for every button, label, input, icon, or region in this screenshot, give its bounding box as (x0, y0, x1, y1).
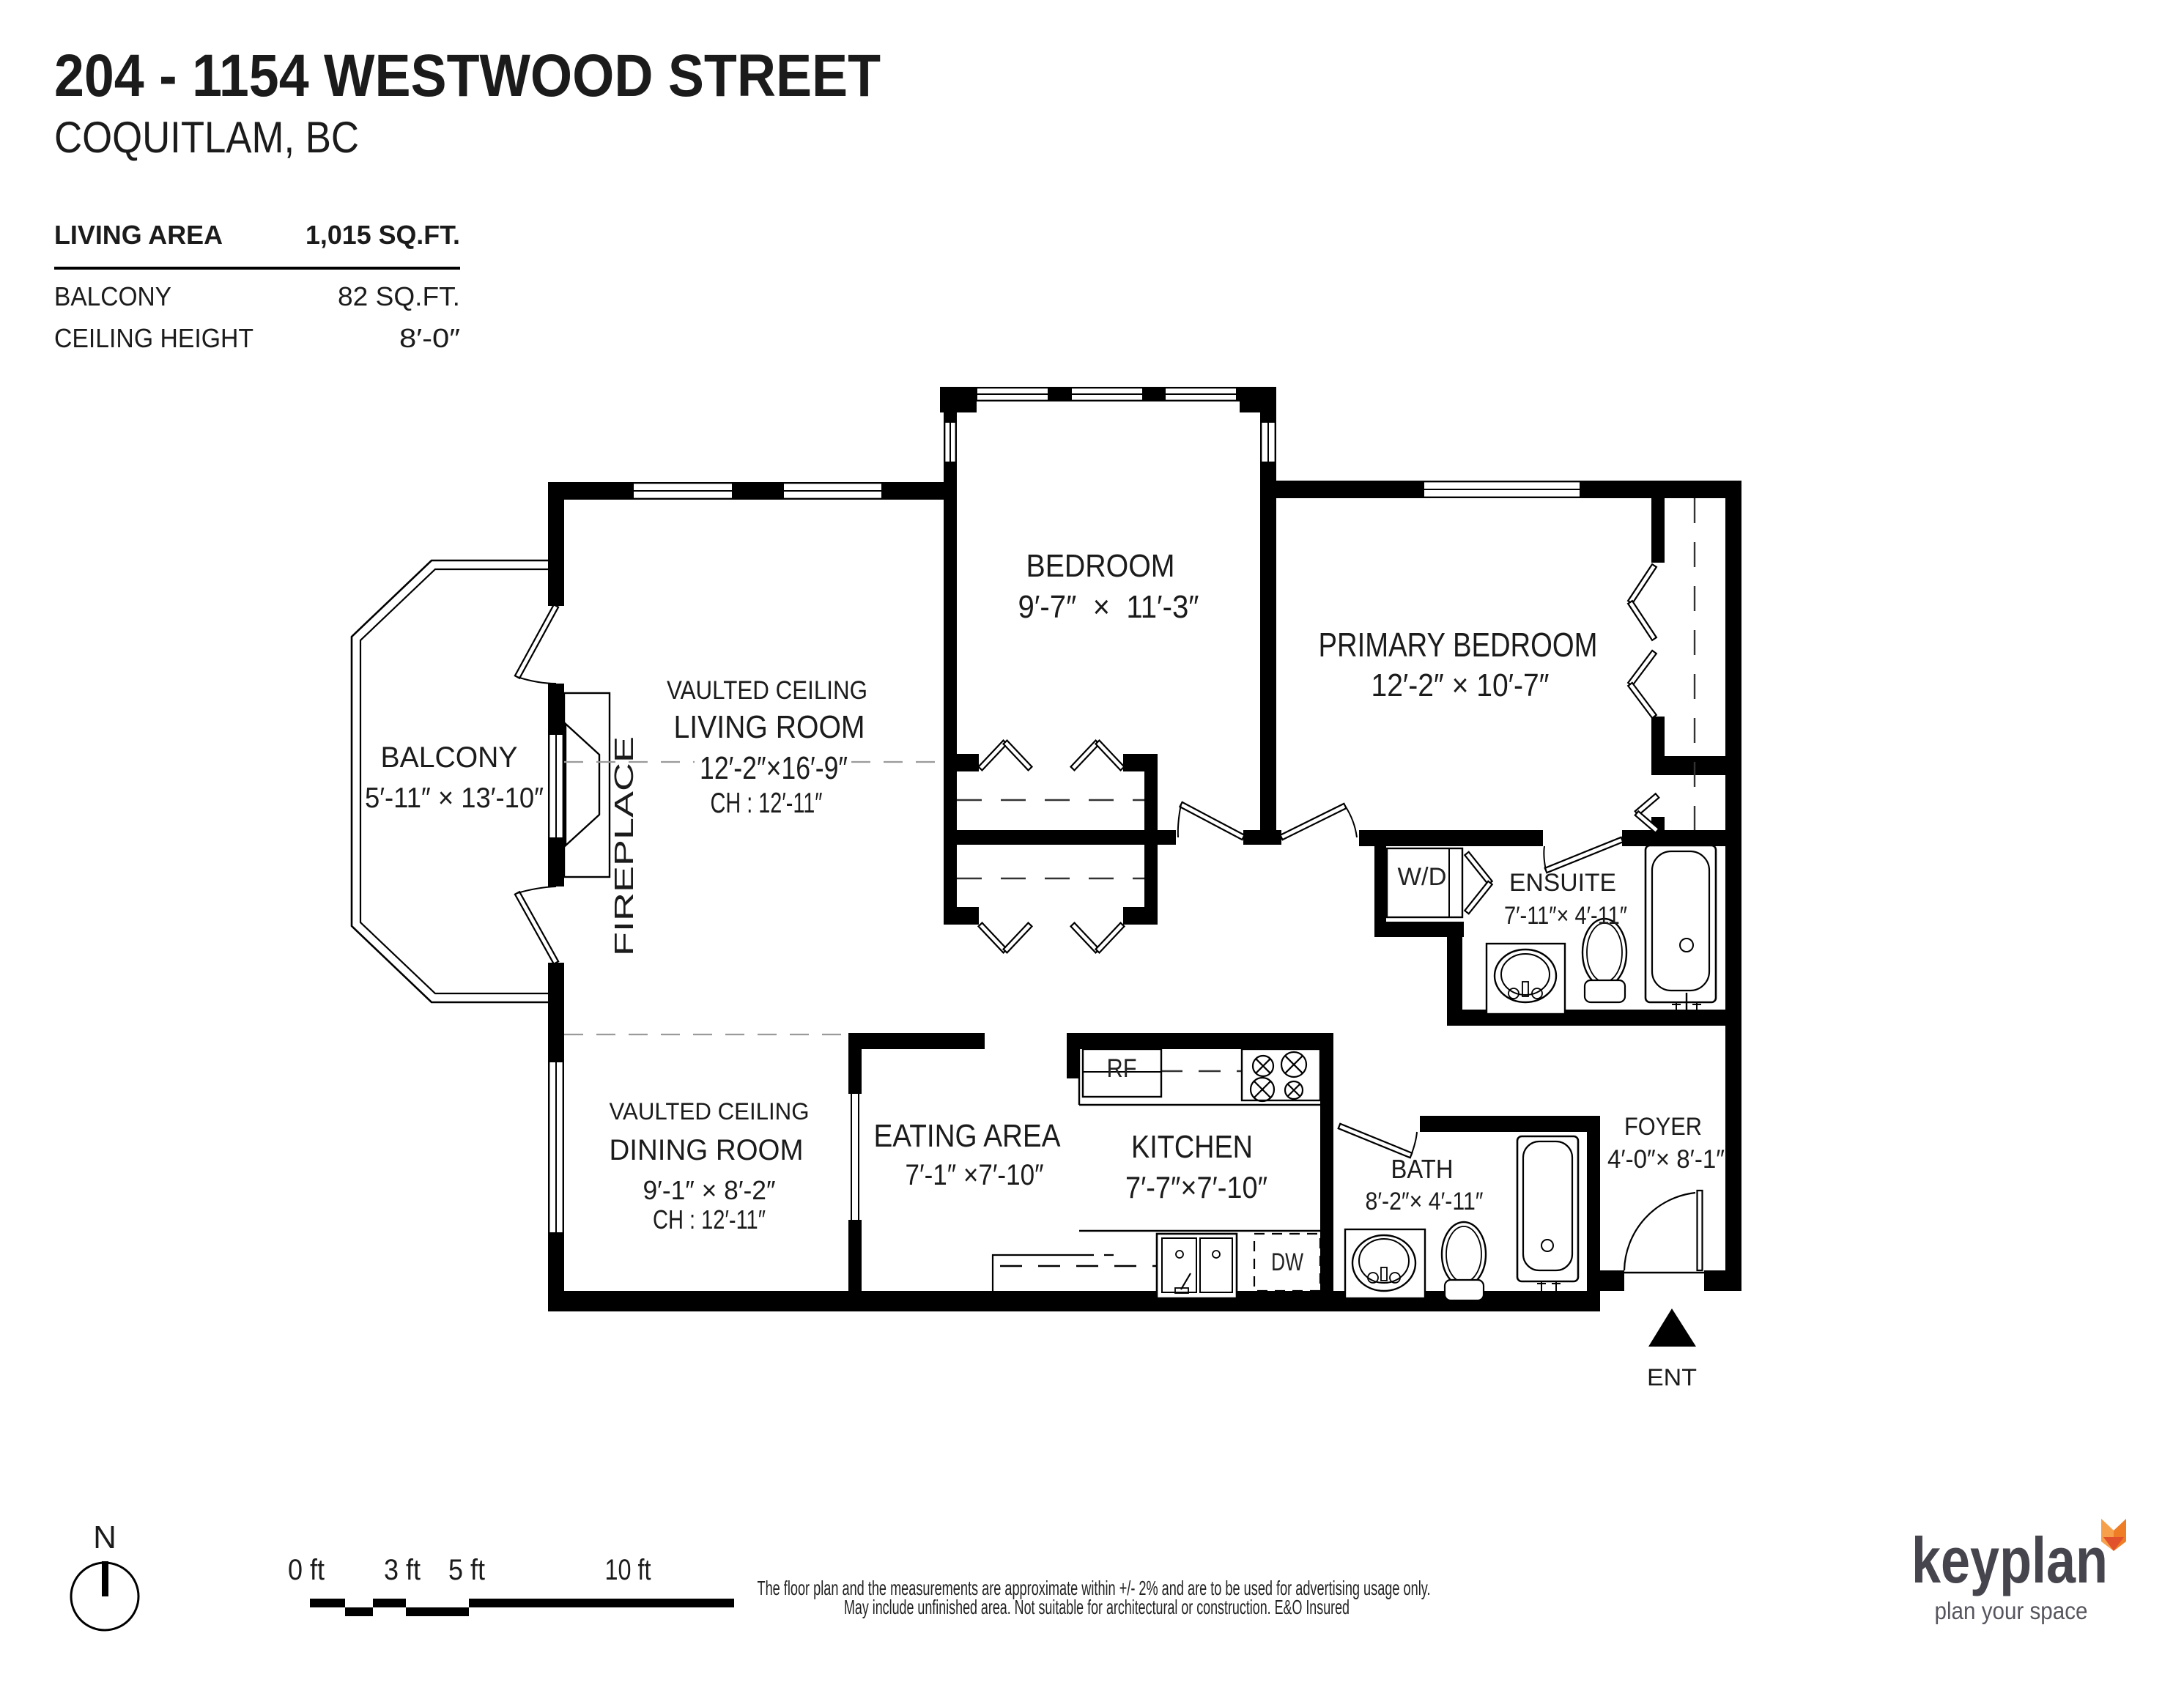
svg-text:BALCONY: BALCONY (54, 281, 171, 311)
svg-text:204 - 1154 WESTWOOD STREET: 204 - 1154 WESTWOOD STREET (54, 42, 881, 109)
svg-text:1,015 SQ.FT.: 1,015 SQ.FT. (306, 220, 460, 250)
svg-text:DINING ROOM: DINING ROOM (610, 1134, 804, 1166)
svg-text:ENT: ENT (1647, 1364, 1697, 1391)
svg-text:3 ft: 3 ft (384, 1554, 421, 1586)
svg-text:KITCHEN: KITCHEN (1131, 1129, 1253, 1165)
svg-text:BATH: BATH (1391, 1154, 1454, 1184)
svg-text:RF: RF (1107, 1054, 1137, 1083)
svg-text:plan your space: plan your space (1935, 1597, 2088, 1624)
svg-text:8′-2″× 4′-11″: 8′-2″× 4′-11″ (1366, 1188, 1484, 1215)
svg-text:12′-2″×16′-9″: 12′-2″×16′-9″ (700, 750, 848, 786)
svg-text:FOYER: FOYER (1624, 1113, 1702, 1141)
svg-text:7′-1″ ×7′-10″: 7′-1″ ×7′-10″ (906, 1159, 1044, 1191)
svg-text:9′-1″ × 8′-2″: 9′-1″ × 8′-2″ (643, 1175, 776, 1205)
svg-text:N: N (93, 1519, 116, 1555)
svg-text:CEILING HEIGHT: CEILING HEIGHT (54, 323, 253, 353)
svg-text:DW: DW (1271, 1248, 1303, 1276)
svg-text:COQUITLAM, BC: COQUITLAM, BC (54, 113, 359, 162)
svg-text:VAULTED CEILING: VAULTED CEILING (667, 676, 867, 705)
svg-text:LIVING ROOM: LIVING ROOM (674, 709, 865, 745)
svg-text:12′-2″ × 10′-7″: 12′-2″ × 10′-7″ (1372, 667, 1550, 703)
svg-text:4′-0″× 8′-1″: 4′-0″× 8′-1″ (1607, 1145, 1725, 1174)
svg-text:May include unfinished area. N: May include unfinished area. Not suitabl… (844, 1596, 1350, 1618)
svg-text:VAULTED CEILING: VAULTED CEILING (610, 1098, 810, 1125)
svg-text:0 ft: 0 ft (288, 1554, 325, 1586)
svg-text:9′-7″ × 11′-3″: 9′-7″ × 11′-3″ (1018, 589, 1199, 625)
svg-text:PRIMARY BEDROOM: PRIMARY BEDROOM (1319, 626, 1598, 664)
svg-text:5 ft: 5 ft (448, 1554, 485, 1586)
svg-text:5′-11″ × 13′-10″: 5′-11″ × 13′-10″ (365, 782, 544, 814)
svg-text:CH : 12′-11″: CH : 12′-11″ (653, 1204, 766, 1234)
svg-text:82 SQ.FT.: 82 SQ.FT. (338, 281, 460, 311)
svg-text:ENSUITE: ENSUITE (1509, 869, 1616, 897)
svg-text:8′-0″: 8′-0″ (399, 323, 460, 353)
svg-text:EATING AREA: EATING AREA (874, 1118, 1062, 1154)
svg-text:W/D: W/D (1398, 863, 1447, 891)
svg-text:7′-11″× 4′-11″: 7′-11″× 4′-11″ (1504, 902, 1627, 930)
svg-text:LIVING AREA: LIVING AREA (54, 220, 223, 250)
svg-text:keyplan: keyplan (1911, 1524, 2108, 1596)
svg-text:7′-7″×7′-10″: 7′-7″×7′-10″ (1125, 1170, 1267, 1204)
svg-text:CH : 12′-11″: CH : 12′-11″ (711, 788, 823, 819)
svg-text:BALCONY: BALCONY (381, 741, 518, 774)
svg-text:FIREPLACE: FIREPLACE (609, 736, 639, 956)
svg-text:BEDROOM: BEDROOM (1026, 548, 1175, 584)
svg-text:10 ft: 10 ft (605, 1554, 651, 1586)
